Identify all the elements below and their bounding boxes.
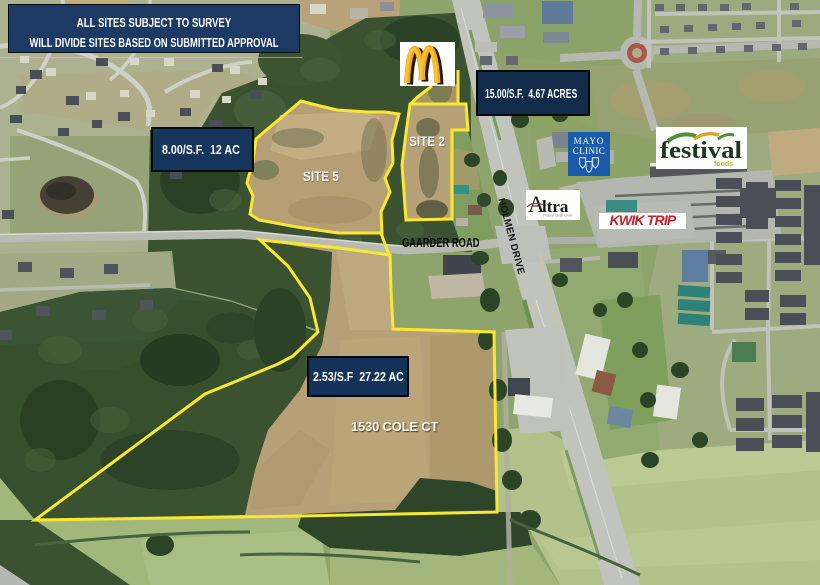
svg-text:Federal Credit Union: Federal Credit Union — [543, 214, 573, 218]
svg-text:foods: foods — [714, 161, 733, 168]
